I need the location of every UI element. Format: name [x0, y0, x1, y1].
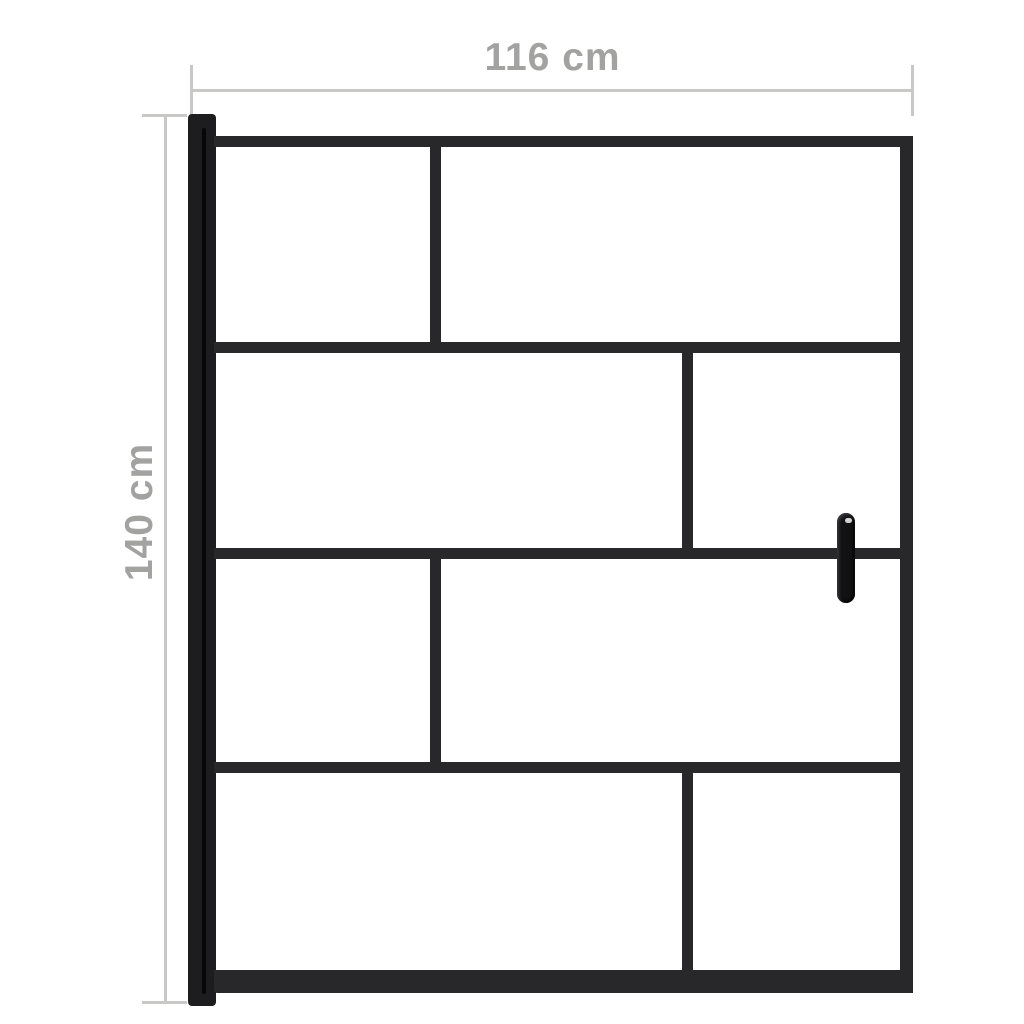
horizontal-mullion-2	[214, 548, 900, 559]
height-dimension-tick-bottom	[142, 1001, 187, 1004]
glass-panel	[693, 773, 900, 970]
height-dimension-label: 140 cm	[120, 412, 160, 612]
door-handle	[837, 513, 855, 603]
glass-panel	[216, 147, 430, 342]
height-dimension-tick-top	[142, 114, 187, 117]
wall-mount-profile	[188, 114, 216, 1006]
vertical-divider-row1	[430, 147, 441, 342]
frame-right-bar	[900, 136, 913, 993]
vertical-divider-row3	[430, 559, 441, 762]
horizontal-mullion-1	[214, 342, 900, 353]
handle-highlight	[845, 518, 852, 523]
glass-panel	[441, 147, 900, 342]
glass-panel	[693, 353, 900, 548]
horizontal-mullion-3	[214, 762, 900, 773]
glass-panel	[216, 353, 682, 548]
width-dimension-label: 116 cm	[192, 38, 913, 78]
frame-top-bar	[214, 136, 913, 147]
shower-screen-dimension-diagram: 116 cm 140 cm	[0, 0, 1024, 1024]
width-dimension-line	[192, 89, 913, 92]
glass-panel	[441, 559, 900, 762]
height-dimension-line	[164, 115, 167, 1004]
vertical-divider-row4	[682, 773, 693, 970]
glass-panel	[216, 559, 430, 762]
glass-panel	[216, 773, 682, 970]
frame-bottom-bar	[214, 970, 913, 993]
wall-profile-groove	[202, 128, 206, 994]
vertical-divider-row2	[682, 353, 693, 548]
